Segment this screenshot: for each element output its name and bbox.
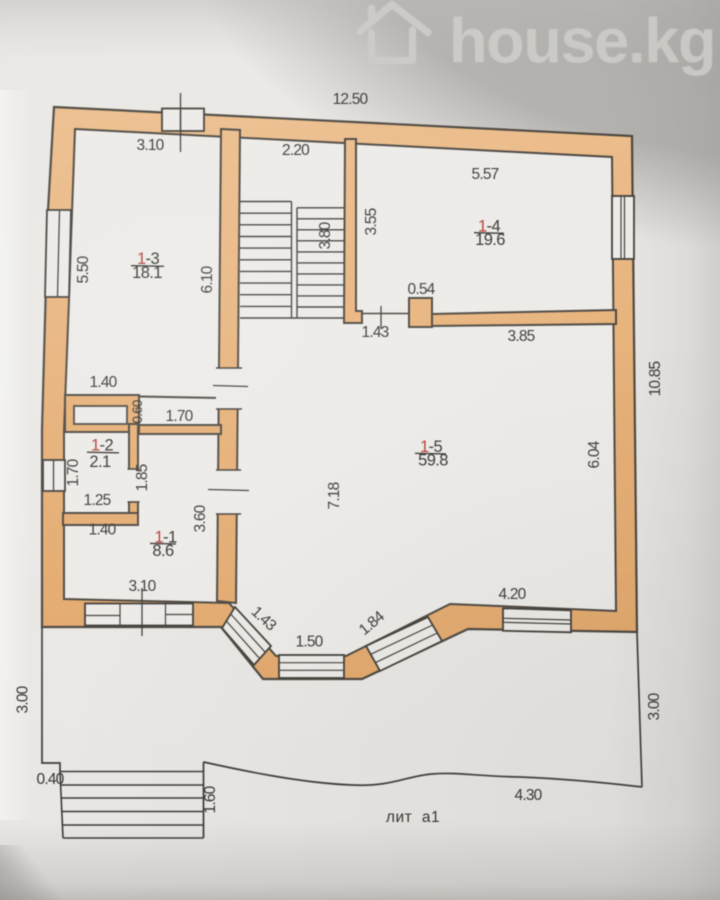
svg-text:8.6: 8.6 [152, 542, 174, 560]
svg-text:0.40: 0.40 [37, 771, 65, 788]
svg-text:3.85: 3.85 [508, 328, 535, 345]
svg-text:1.70: 1.70 [166, 408, 194, 425]
svg-text:0.54: 0.54 [408, 281, 436, 298]
svg-text:3.00: 3.00 [15, 685, 32, 713]
svg-text:5.57: 5.57 [472, 166, 499, 183]
svg-text:1.85: 1.85 [134, 464, 151, 491]
svg-text:3.10: 3.10 [129, 578, 157, 595]
svg-text:18.1: 18.1 [132, 264, 162, 282]
svg-text:3.55: 3.55 [363, 208, 380, 235]
svg-text:0.60: 0.60 [130, 400, 145, 423]
svg-text:2.1: 2.1 [89, 453, 111, 471]
svg-text:10.85: 10.85 [647, 361, 664, 396]
svg-text:6.04: 6.04 [586, 440, 603, 468]
svg-text:5.50: 5.50 [75, 255, 92, 283]
svg-text:3.80: 3.80 [317, 221, 334, 249]
svg-text:3.10: 3.10 [137, 137, 165, 154]
svg-text:1.70: 1.70 [65, 458, 82, 486]
svg-text:лит а1: лит а1 [386, 809, 440, 826]
svg-text:3.60: 3.60 [192, 504, 209, 532]
svg-text:1.40: 1.40 [89, 522, 117, 539]
svg-text:4.20: 4.20 [499, 586, 527, 603]
svg-text:1.60: 1.60 [202, 785, 219, 813]
svg-text:1.25: 1.25 [84, 492, 111, 509]
svg-text:4.30: 4.30 [515, 787, 543, 804]
svg-text:59.8: 59.8 [418, 452, 448, 470]
svg-text:7.18: 7.18 [326, 482, 343, 509]
svg-text:1.40: 1.40 [90, 374, 118, 391]
svg-text:3.00: 3.00 [646, 692, 663, 720]
svg-text:2.20: 2.20 [282, 142, 310, 159]
svg-text:6.10: 6.10 [199, 265, 216, 293]
svg-text:1.43: 1.43 [362, 324, 389, 341]
svg-text:19.6: 19.6 [475, 231, 505, 249]
svg-text:1.50: 1.50 [296, 634, 324, 651]
svg-text:12.50: 12.50 [333, 91, 369, 108]
